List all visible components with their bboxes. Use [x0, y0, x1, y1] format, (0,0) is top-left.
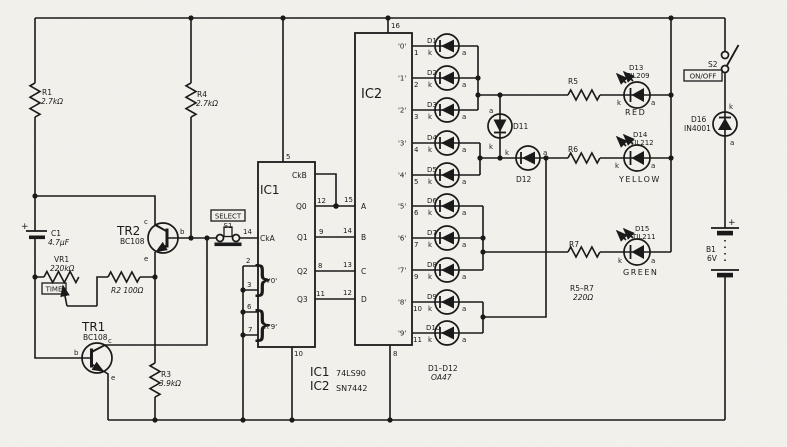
d3-a: a: [462, 113, 466, 121]
ic1-pin12: 12: [317, 197, 326, 205]
time-tag: TIME: [45, 286, 63, 294]
s1-name: S1: [224, 222, 233, 230]
r1-name: R1: [42, 88, 52, 97]
b1-name: B1: [706, 245, 716, 254]
led-yellow-part: TIL212: [629, 139, 654, 147]
c1-name: C1: [51, 229, 61, 238]
tr1-part: BC108: [83, 333, 108, 342]
ic2-in-pin-b: 14: [343, 227, 352, 235]
ic1-q2: Q2: [297, 267, 308, 276]
parts-ic1: IC1: [310, 365, 330, 379]
r6-name: R6: [568, 145, 578, 154]
d7-a: a: [462, 241, 466, 249]
d16-part: IN4001: [684, 124, 711, 133]
ic2-out-pin-0: 1: [414, 49, 418, 57]
b1-value: 6V: [707, 254, 718, 263]
r4-name: R4: [197, 90, 207, 99]
d2-name: D2: [427, 69, 437, 77]
ic1-ckb: CkB: [292, 171, 307, 180]
scanned-schematic-page: R1 2.7kΩ R4 2.7kΩ + C1 4.7µF VR1 220kΩ T…: [0, 0, 787, 447]
ic2-in-pin-c: 13: [343, 261, 352, 269]
ic2-out-pin-2: 3: [414, 113, 418, 121]
ic1-pin5: 5: [286, 153, 290, 161]
r-note-range: R5–R7: [570, 284, 594, 293]
d1-a: a: [462, 49, 466, 57]
ic1-pin10: 10: [294, 350, 303, 358]
d10-name: D10: [426, 324, 440, 332]
tr1-name: TR1: [81, 320, 105, 334]
d6-name: D6: [427, 197, 437, 205]
d6-a: a: [462, 209, 466, 217]
r7-name: R7: [569, 240, 579, 249]
ic2-out-pin-1: 2: [414, 81, 418, 89]
d4-a: a: [462, 146, 466, 154]
traffic-light-circuit-schematic: R1 2.7kΩ R4 2.7kΩ + C1 4.7µF VR1 220kΩ T…: [0, 0, 787, 447]
ic2-out-6: '6': [398, 235, 406, 243]
ic2-out-pin-5: 6: [414, 209, 419, 217]
ic1-pin9: 9: [319, 228, 323, 236]
ic2-out-8: '8': [398, 299, 406, 307]
ic1-q3: Q3: [297, 295, 308, 304]
ic1-pin8: 8: [318, 262, 322, 270]
d8-name: D8: [427, 261, 437, 269]
ic2-in-a: A: [361, 202, 367, 211]
ic2-out-pin-8: 10: [413, 305, 422, 313]
onoff-tag: ON/OFF: [690, 73, 717, 81]
led-red-part: TIL209: [625, 72, 650, 80]
ic2-out-7: '7': [398, 267, 406, 275]
c1-value: 4.7µF: [48, 238, 70, 247]
b1-plus: +: [728, 218, 736, 228]
ic2-in-d: D: [361, 295, 367, 304]
ic2-out-pin-9: 11: [413, 336, 422, 344]
d1-name: D1: [427, 37, 437, 45]
r5-name: R5: [568, 77, 578, 86]
ic2-label: IC2: [361, 87, 382, 102]
ic2-in-pin-d: 12: [343, 289, 352, 297]
d4-name: D4: [427, 134, 437, 142]
d5-a: a: [462, 178, 466, 186]
c1-plus: +: [21, 222, 29, 232]
tr2-pin-e: e: [144, 255, 148, 263]
ic1-pin14: 14: [243, 228, 252, 236]
r3-name: R3: [161, 370, 171, 379]
tr1-pin-c: c: [108, 337, 112, 345]
vr1-name: VR1: [54, 255, 69, 264]
d-note-range: D1–D12: [428, 364, 458, 373]
ic2-out-2: '2': [398, 107, 406, 115]
d2-a: a: [462, 81, 466, 89]
d7-name: D7: [427, 229, 437, 237]
parts-ic2-part: SN7442: [336, 384, 367, 393]
tr1-pin-b: b: [74, 349, 79, 357]
d16-a: a: [730, 139, 734, 147]
r2-label: R2 100Ω: [111, 286, 144, 295]
d11-name: D11: [513, 122, 529, 131]
r1-value: 2.7kΩ: [41, 97, 63, 106]
ic1-q0: Q0: [296, 202, 307, 211]
ic2-out-0: '0': [398, 43, 406, 51]
led-red-a: a: [651, 99, 655, 107]
led-yellow-name: D14: [633, 131, 648, 139]
ic2-in-pin-a: 15: [344, 196, 353, 204]
led-red-name: D13: [629, 64, 643, 72]
d3-name: D3: [427, 101, 437, 109]
r4-value: 2.7kΩ: [196, 99, 218, 108]
led-red-color: RED: [625, 108, 646, 117]
d11-a: a: [489, 107, 493, 115]
r-note-value: 220Ω: [573, 293, 593, 302]
led-green-color: GREEN: [623, 268, 658, 277]
led-green-a: a: [651, 257, 655, 265]
led-yellow-a: a: [651, 162, 655, 170]
ic1-q1: Q1: [297, 233, 308, 242]
ic1-r9: R'9': [264, 323, 277, 331]
tr1-pin-e: e: [111, 374, 115, 382]
ic2-out-pin-6: 7: [414, 241, 418, 249]
ic2-in-b: B: [361, 233, 366, 242]
ic1-pin2: 2: [246, 257, 250, 265]
ic2-out-pin-7: 9: [414, 273, 418, 281]
d10-a: a: [462, 336, 466, 344]
d8-a: a: [462, 273, 466, 281]
tr2-pin-b: b: [180, 228, 185, 236]
ic1-pin11: 11: [316, 290, 325, 298]
led-green-part: TIL211: [631, 233, 656, 241]
led-yellow-color: YELLOW: [618, 175, 661, 184]
select-tag: SELECT: [215, 213, 242, 221]
ic2-out-9: '9': [398, 330, 406, 338]
d9-name: D9: [427, 293, 437, 301]
ic1-r0: R'0': [264, 277, 277, 285]
d5-name: D5: [427, 166, 437, 174]
parts-ic2: IC2: [310, 379, 330, 393]
ic2-in-c: C: [361, 267, 366, 276]
ic2-out-pin-4: 5: [414, 178, 418, 186]
ic2-pin8: 8: [393, 350, 397, 358]
led-green-name: D15: [635, 225, 649, 233]
d12-a: a: [543, 149, 547, 157]
ic2-out-1: '1': [398, 75, 406, 83]
ic2-out-pin-3: 4: [414, 146, 419, 154]
ic2-out-3: '3': [398, 140, 406, 148]
d16-name: D16: [691, 115, 707, 124]
ic1-cka: CkA: [260, 234, 276, 243]
ic2-pin16: 16: [391, 22, 400, 30]
tr2-pin-c: c: [144, 218, 148, 226]
ic2-out-5: '5': [398, 203, 406, 211]
tr2-part: BC108: [120, 237, 145, 246]
r3-value: 3.9kΩ: [159, 379, 181, 388]
vr1-value: 220kΩ: [50, 264, 75, 273]
tr2-name: TR2: [116, 224, 140, 238]
ic1-label: IC1: [260, 183, 280, 197]
parts-ic1-part: 74LS90: [336, 369, 366, 378]
ic2-out-4: '4': [398, 172, 406, 180]
d-note-part: OA47: [431, 373, 452, 382]
d12-name: D12: [516, 175, 532, 184]
d9-a: a: [462, 305, 466, 313]
s2-name: S2: [708, 60, 718, 69]
